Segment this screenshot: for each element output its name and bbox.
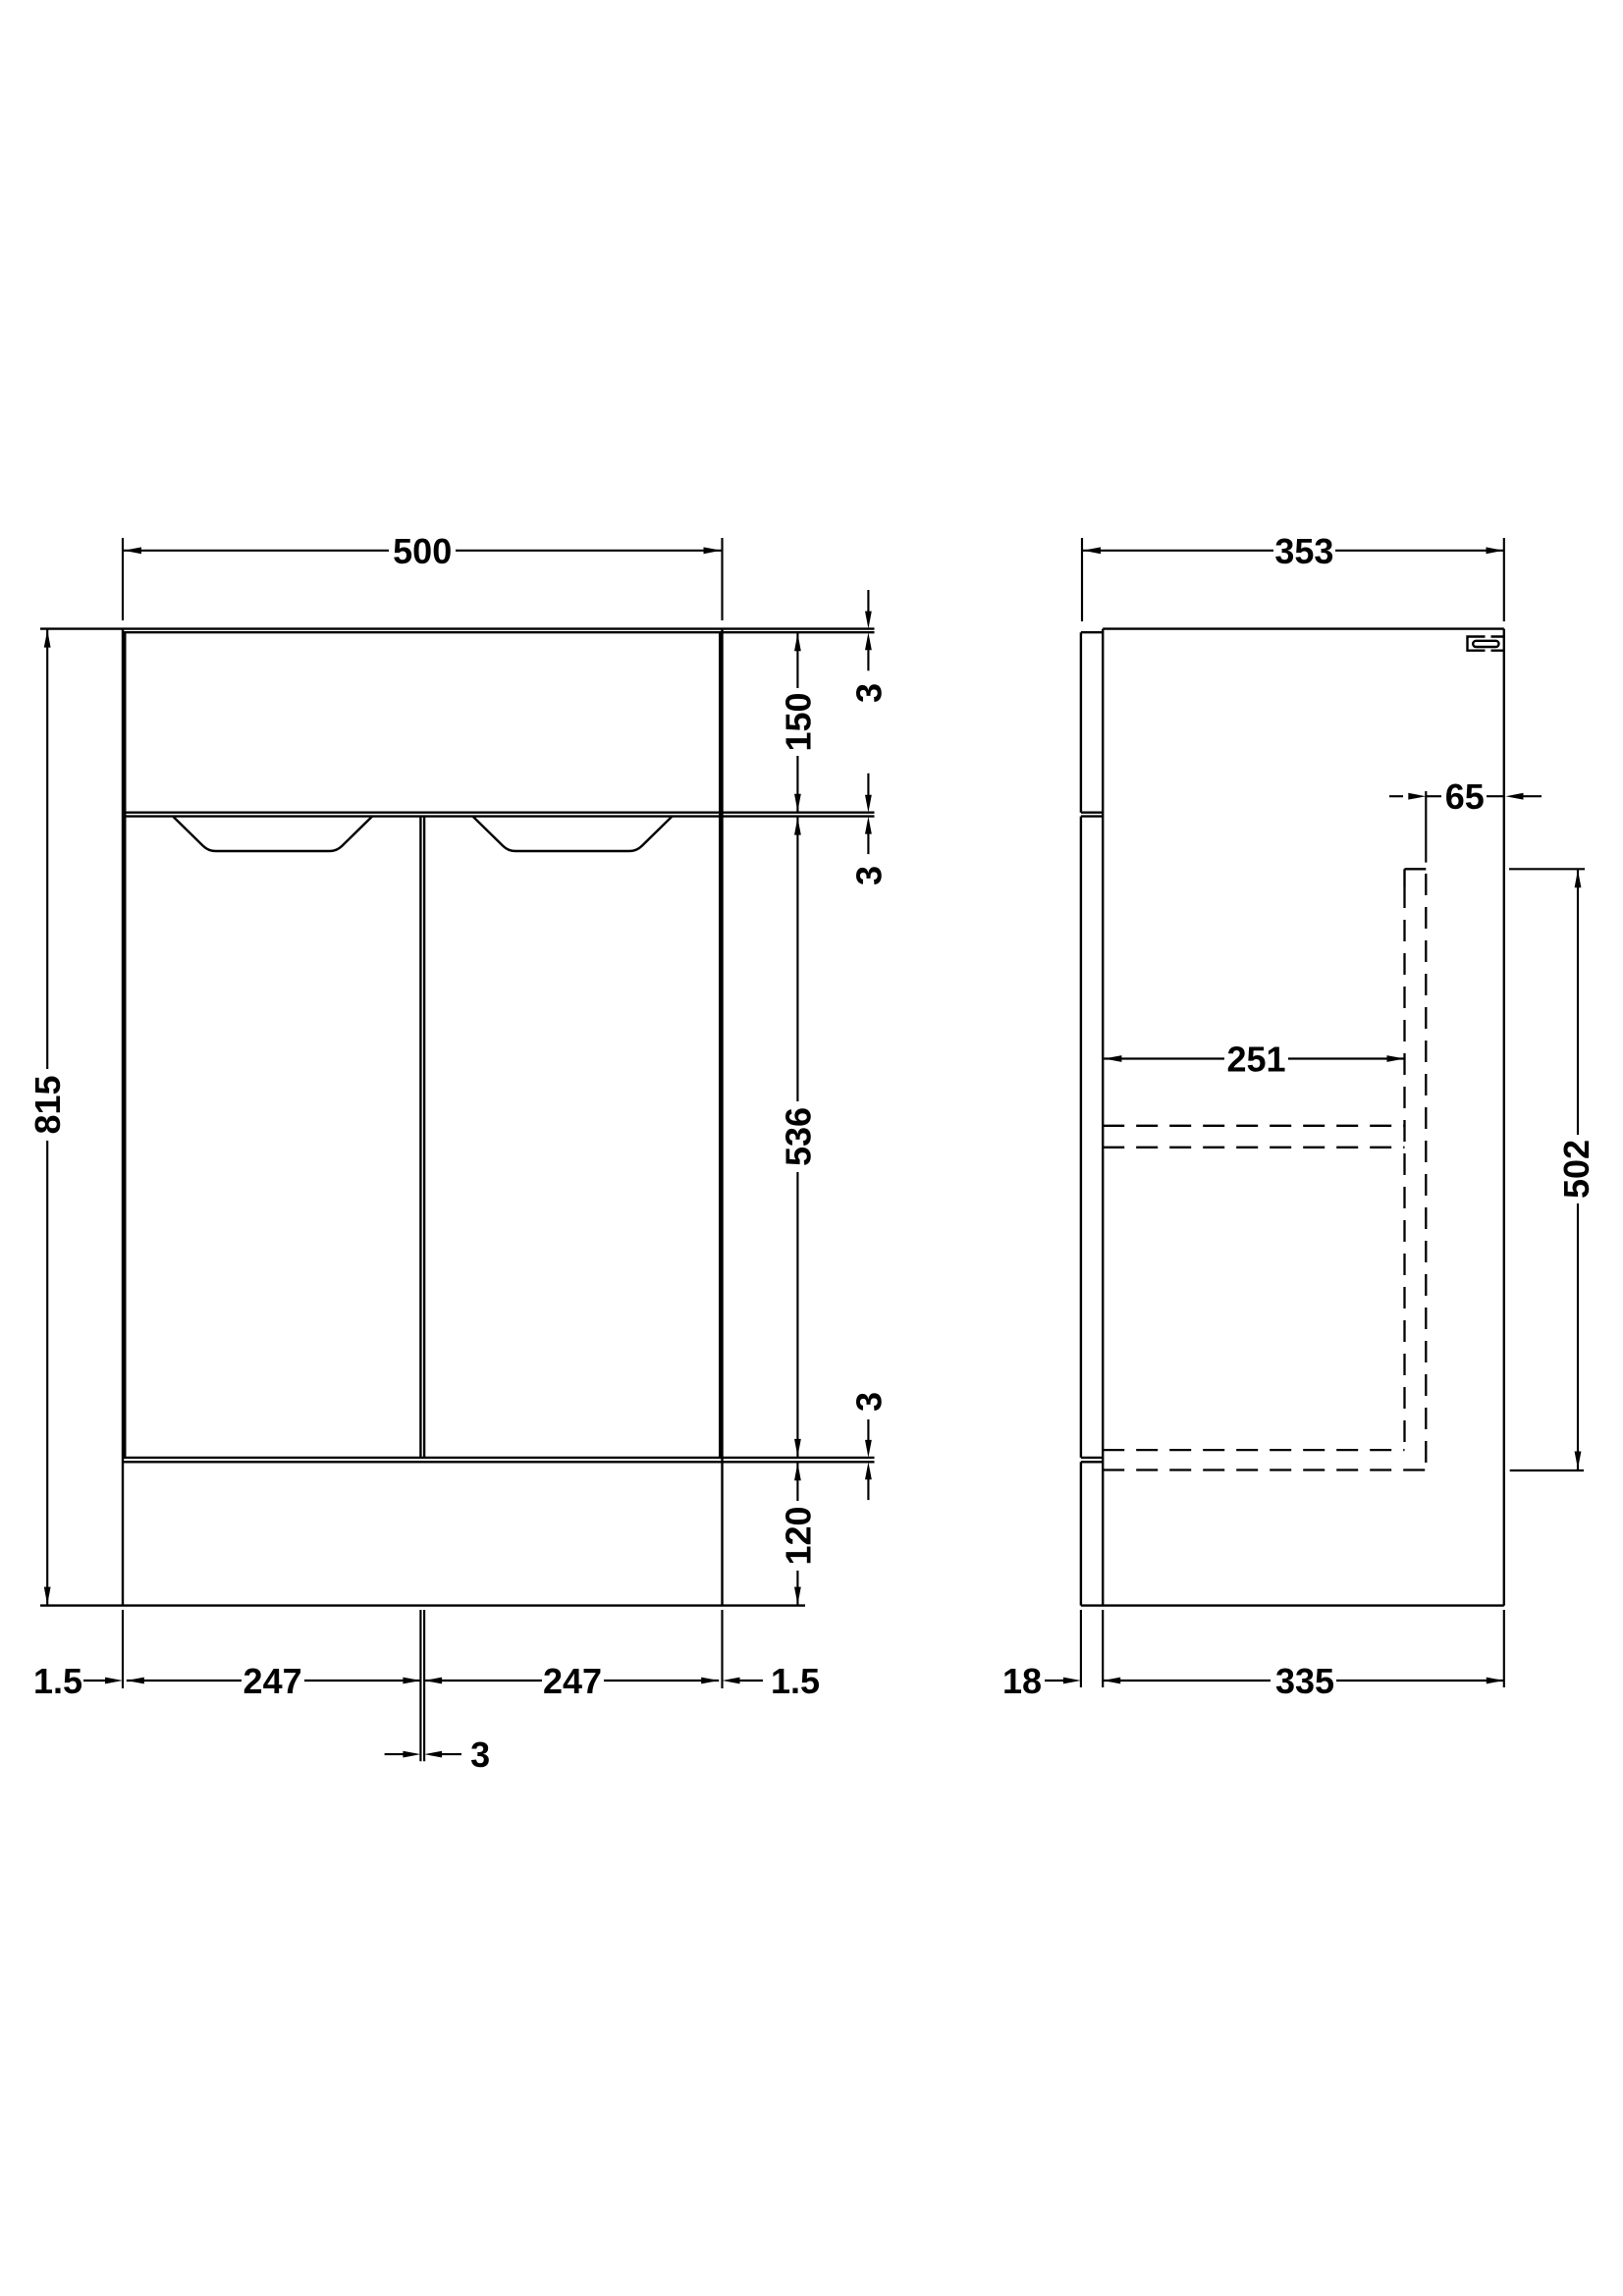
- svg-text:353: 353: [1274, 531, 1333, 571]
- svg-text:3: 3: [470, 1735, 490, 1775]
- svg-text:251: 251: [1226, 1040, 1285, 1080]
- svg-text:1.5: 1.5: [33, 1661, 82, 1701]
- svg-text:536: 536: [778, 1107, 818, 1166]
- svg-text:1.5: 1.5: [771, 1661, 820, 1701]
- svg-text:150: 150: [778, 692, 818, 751]
- svg-text:3: 3: [848, 683, 889, 703]
- svg-text:247: 247: [243, 1661, 302, 1701]
- svg-text:65: 65: [1445, 776, 1485, 817]
- svg-text:500: 500: [393, 531, 452, 571]
- svg-text:502: 502: [1556, 1140, 1596, 1199]
- svg-text:815: 815: [27, 1075, 68, 1134]
- svg-text:18: 18: [1002, 1661, 1042, 1701]
- svg-text:120: 120: [778, 1506, 818, 1565]
- svg-text:3: 3: [848, 1392, 889, 1412]
- svg-text:247: 247: [543, 1661, 602, 1701]
- svg-text:3: 3: [848, 866, 889, 885]
- svg-text:335: 335: [1275, 1661, 1334, 1701]
